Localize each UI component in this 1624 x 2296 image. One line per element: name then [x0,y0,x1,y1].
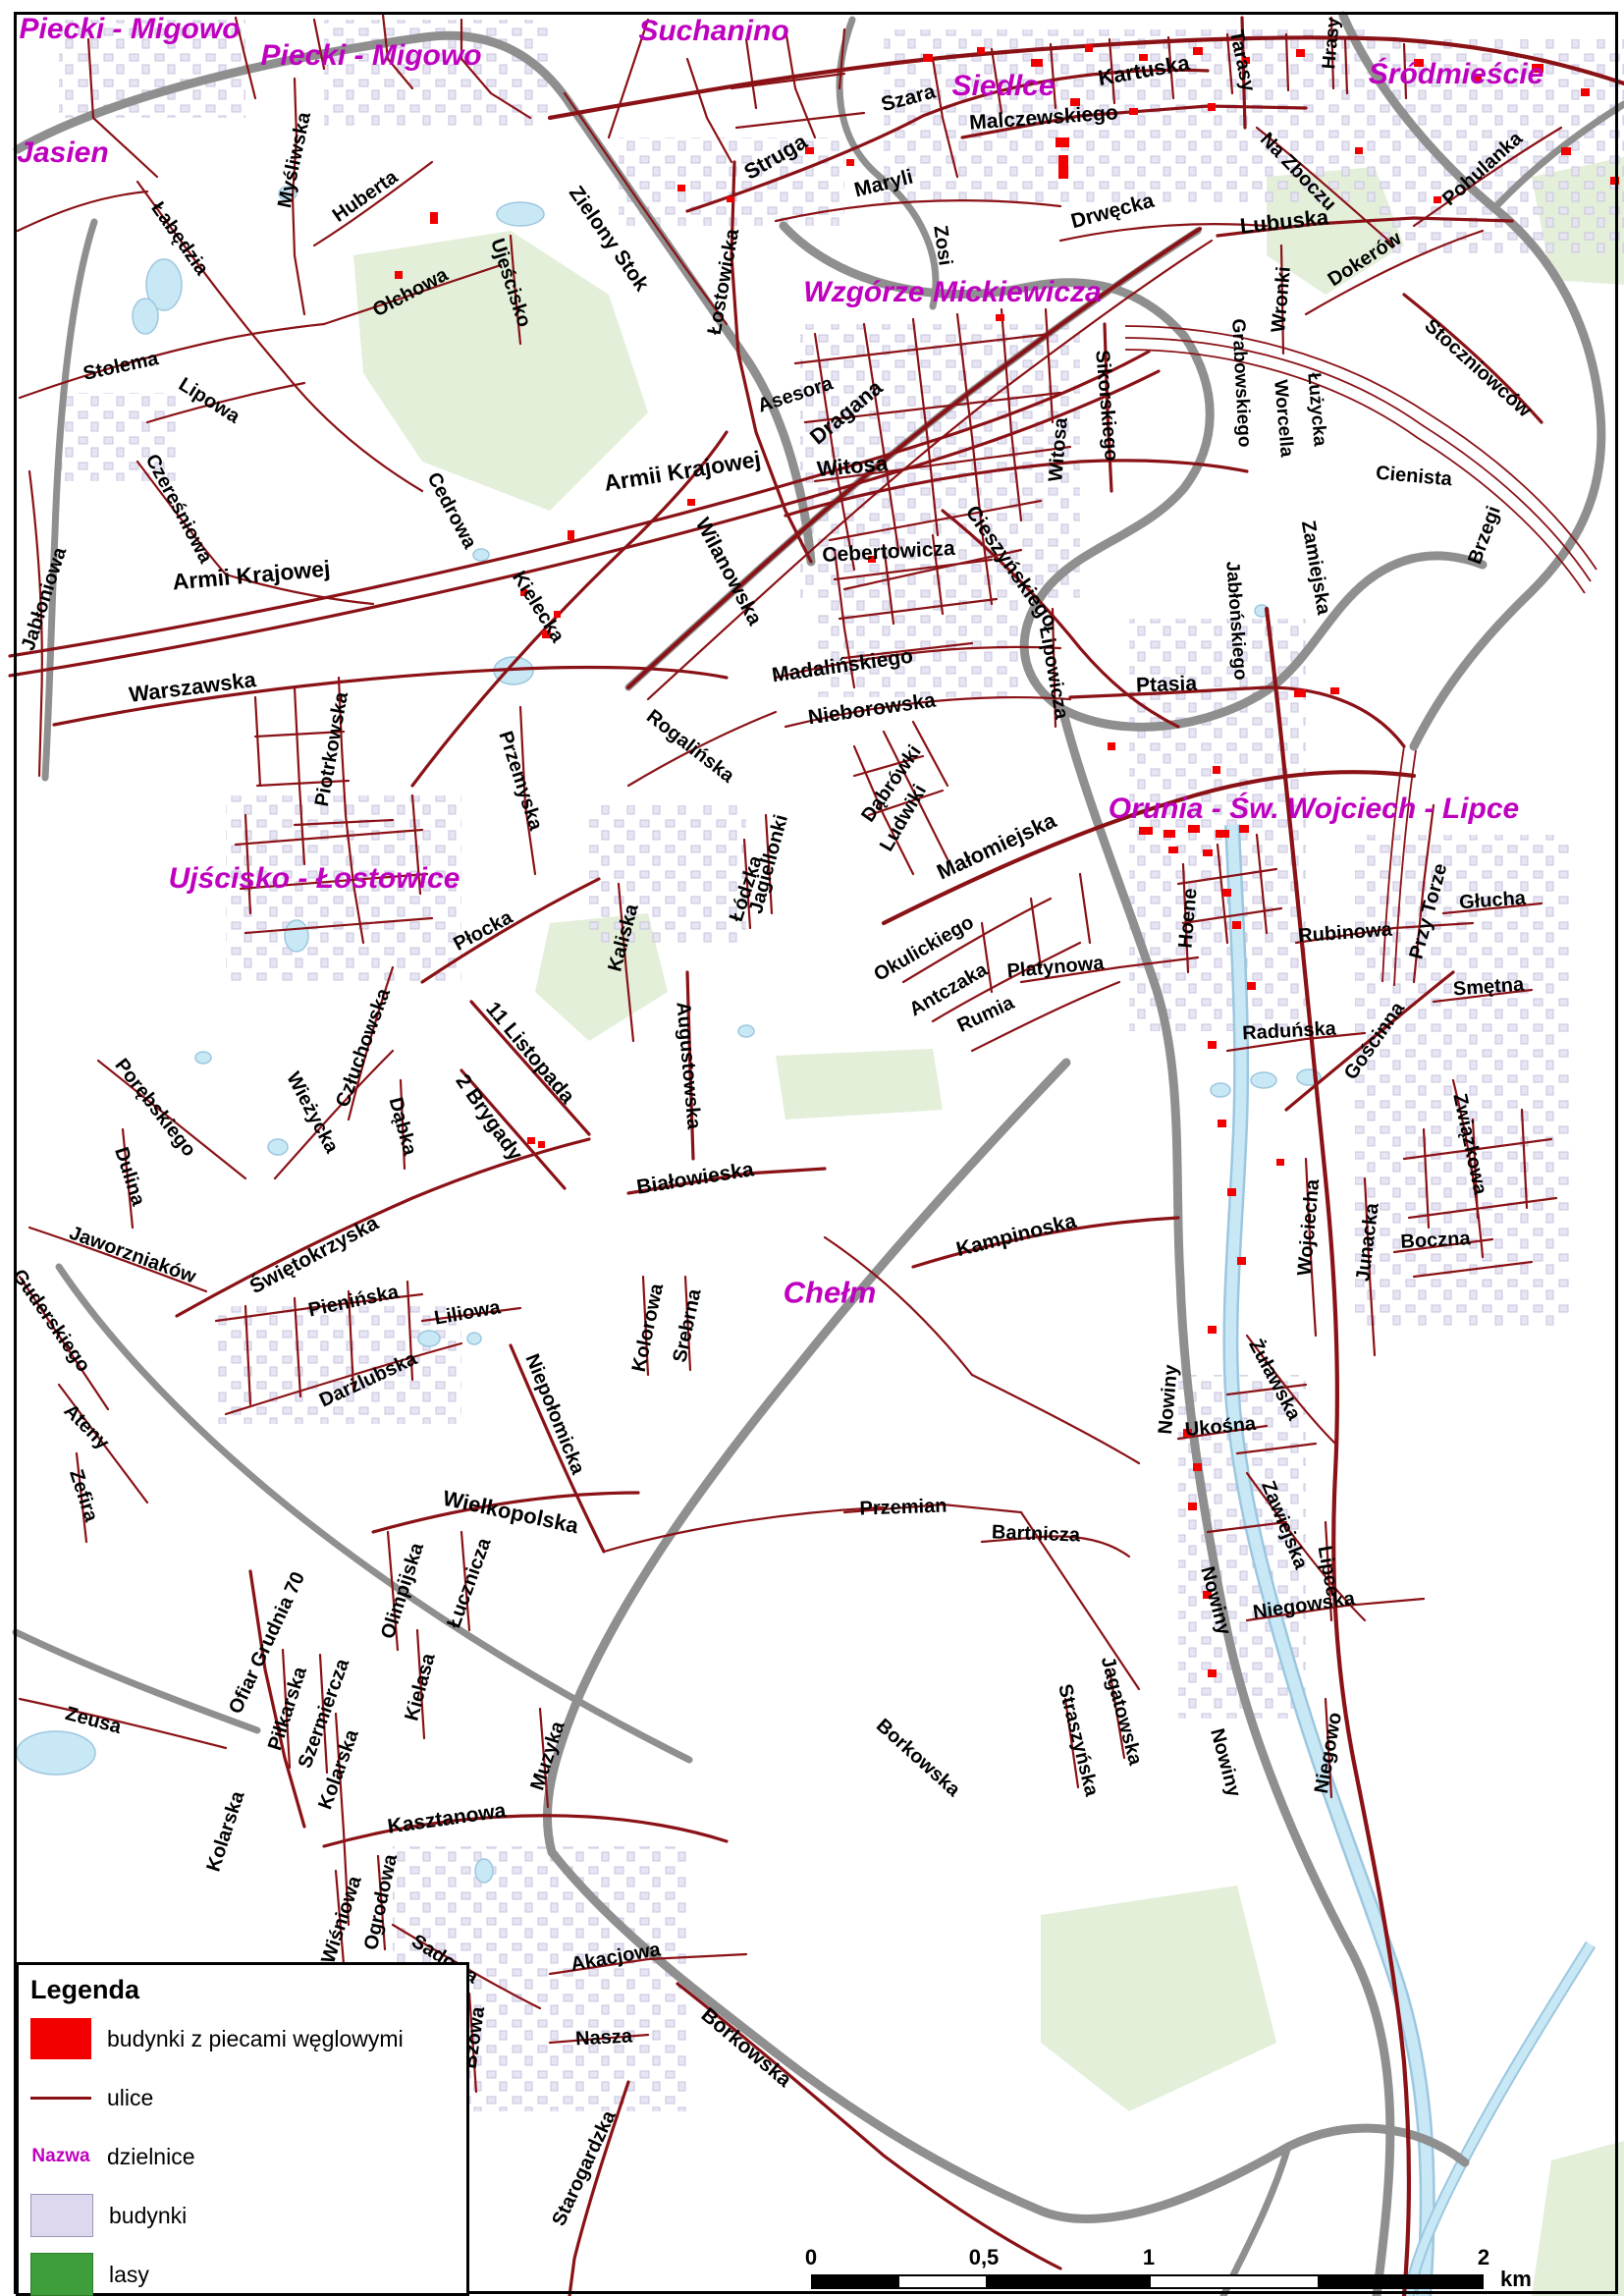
street-label-hrasy: Hrasy [1320,17,1343,70]
scale-tick-2: 1 [1143,2245,1155,2270]
legend-item-lasy: lasy [19,2245,466,2296]
district-label-piecki-migowo: Piecki - Migowo [260,41,481,71]
street-label-hoene: Hoene [1175,888,1200,950]
map-document: ŁabędziaMyśliwskaHubertaOlchowaUjeścisko… [0,0,1624,2296]
legend-item-budynki-z-piecami-w-glowymi: budynki z piecami węglowymi [19,2009,466,2068]
district-label-wzg-rze-mickiewicza: Wzgórze Mickiewicza [803,278,1101,307]
scale-tick-0: 0 [805,2245,817,2270]
street-label-zosi: Zosi [930,224,955,267]
street-label-g-ucha: Głucha [1458,889,1526,913]
street-label-ptasia: Ptasia [1136,673,1198,695]
legend: Legenda budynki z piecami węglowymiulice… [16,1962,469,2296]
scale-unit-label: km [1500,2267,1532,2292]
district-label-orunia-w-wojciech-lipce: Orunia - Św. Wojciech - Lipce [1109,794,1519,824]
legend-swatch-forest [30,2253,93,2296]
legend-item-budynki: budynki [19,2186,466,2245]
legend-label: lasy [109,2262,149,2288]
legend-items: budynki z piecami węglowymiuliceNazwadzi… [19,2009,466,2296]
district-label-r-dmie-cie: Śródmieście [1369,60,1543,89]
district-label-siedlce: Siedlce [951,72,1055,101]
map-canvas [0,0,1624,2296]
district-label-che-m: Chełm [784,1278,877,1308]
legend-swatch-bld2 [30,2194,93,2237]
legend-title: Legenda [30,1975,466,2005]
street-label-przemian: Przemian [859,1496,947,1518]
legend-label: budynki z piecami węglowymi [107,2026,404,2052]
legend-label: ulice [107,2085,153,2111]
legend-label: dzielnice [107,2144,195,2170]
legend-item-dzielnice: Nazwadzielnice [19,2127,466,2186]
scale-tick-1: 0,5 [969,2245,1000,2270]
district-label-piecki-migowo: Piecki - Migowo [19,15,240,44]
district-label-jasien: Jasien [17,138,108,168]
street-label-bartnicza: Bartnicza [992,1522,1081,1545]
legend-label: budynki [109,2203,187,2229]
street-label-boczna: Boczna [1400,1229,1471,1252]
street-label-nasza: Nasza [575,2027,633,2050]
legend-swatch-coal [30,2018,91,2059]
district-label-uj-cisko-ostowice: Ujścisko - Łostowice [169,864,460,894]
scale-tick-3: 2 [1478,2245,1489,2270]
legend-item-ulice: ulice [19,2068,466,2127]
street-label-witosa: Witosa [1046,417,1071,483]
legend-swatch-street [30,2077,91,2118]
district-label-suchanino: Suchanino [638,17,788,46]
scale-bar [811,2274,1484,2289]
street-label-sm-tna: Smętna [1452,975,1524,1000]
legend-swatch-nazwa: Nazwa [30,2136,91,2177]
street-label-radu-ska: Raduńska [1242,1019,1337,1044]
